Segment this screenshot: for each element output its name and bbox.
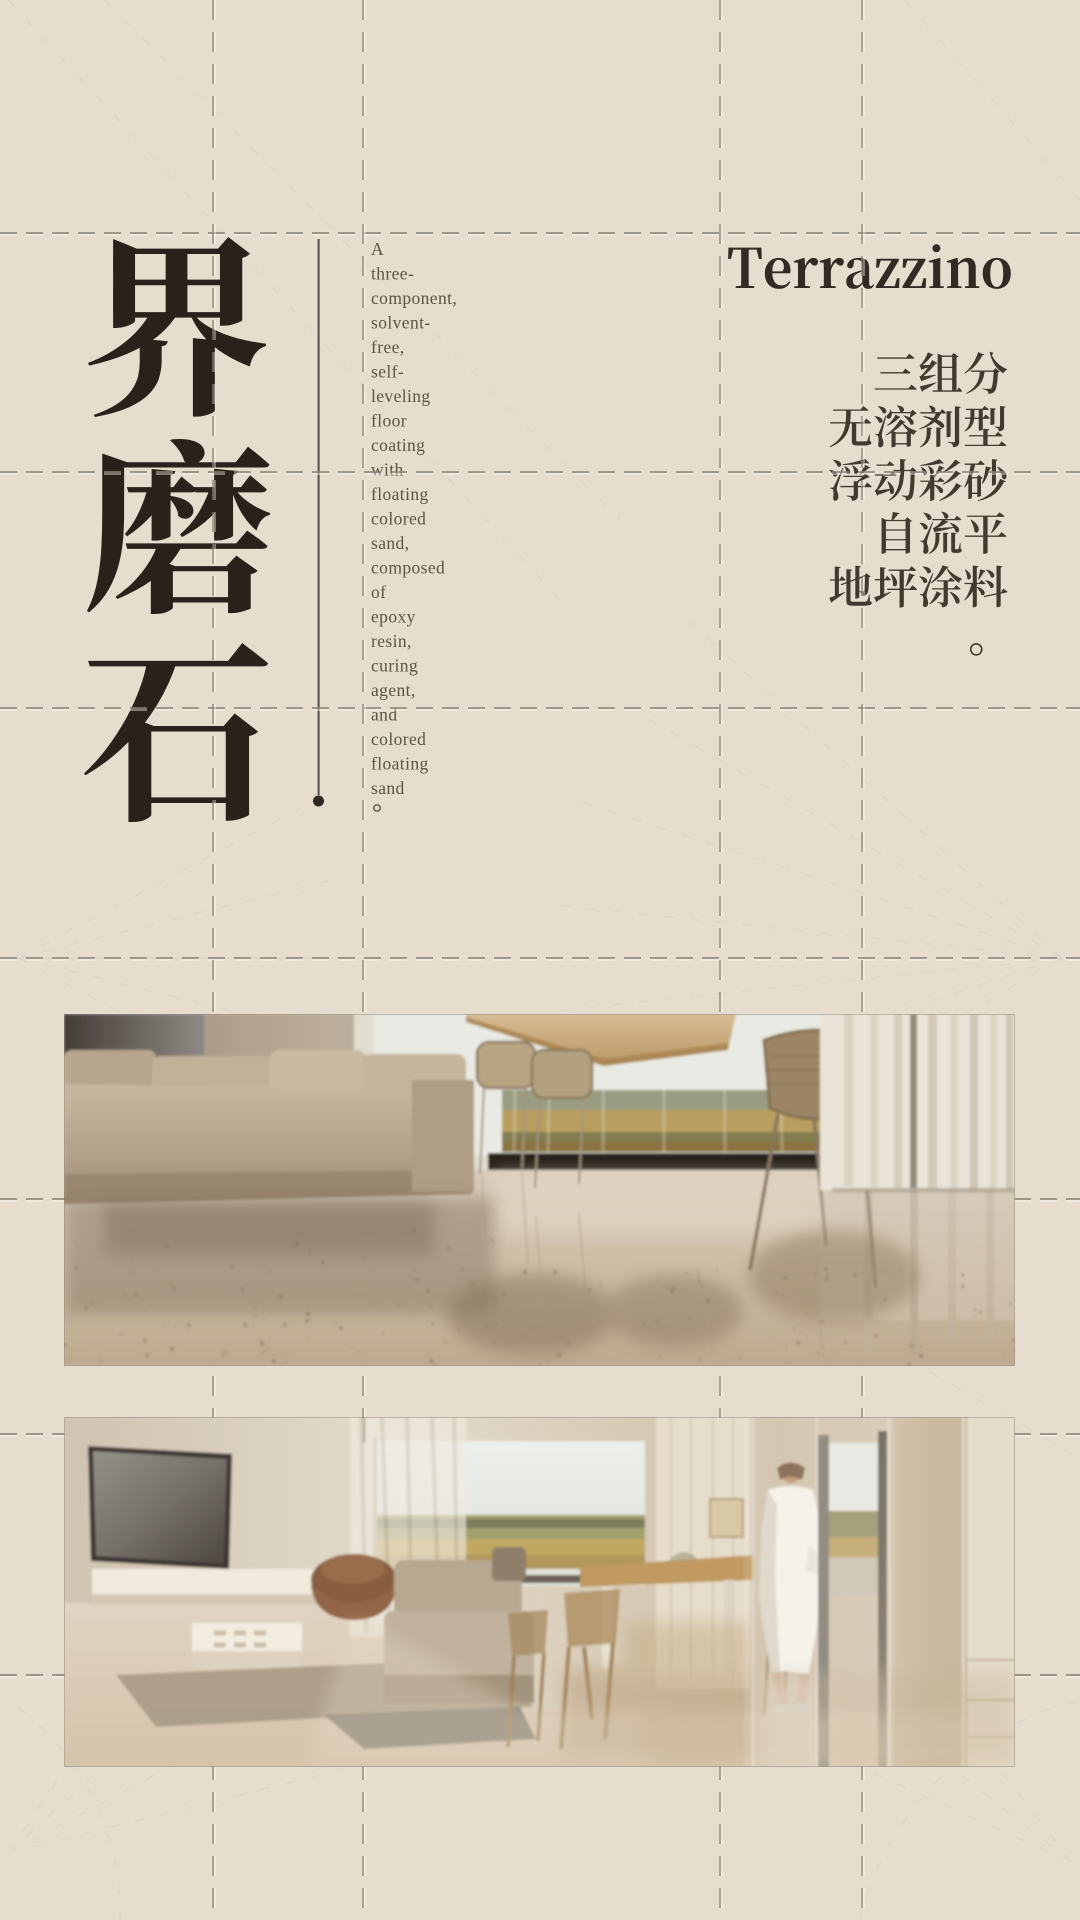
- svg-text:free,: free,: [371, 337, 405, 357]
- svg-text:colored: colored: [371, 509, 426, 529]
- svg-text:coating: coating: [371, 435, 425, 455]
- svg-text:colored: colored: [371, 729, 426, 749]
- svg-text:agent,: agent,: [371, 680, 416, 700]
- svg-text:sand,: sand,: [371, 533, 409, 553]
- svg-text:floating: floating: [371, 484, 429, 504]
- svg-text:leveling: leveling: [371, 386, 431, 406]
- svg-text:floating: floating: [371, 754, 429, 774]
- svg-text:epoxy: epoxy: [371, 607, 416, 627]
- svg-text:curing: curing: [371, 656, 418, 676]
- svg-text:with: with: [371, 460, 404, 480]
- svg-text:floor: floor: [371, 411, 407, 431]
- svg-text:resin,: resin,: [371, 631, 412, 651]
- svg-text:sand: sand: [371, 778, 405, 798]
- svg-text:solvent-: solvent-: [371, 313, 431, 333]
- svg-text:of: of: [371, 582, 386, 602]
- svg-text:three-: three-: [371, 264, 414, 284]
- svg-text:composed: composed: [371, 558, 445, 578]
- svg-text:A: A: [371, 239, 384, 259]
- svg-text:self-: self-: [371, 362, 404, 382]
- svg-text:component,: component,: [371, 288, 457, 308]
